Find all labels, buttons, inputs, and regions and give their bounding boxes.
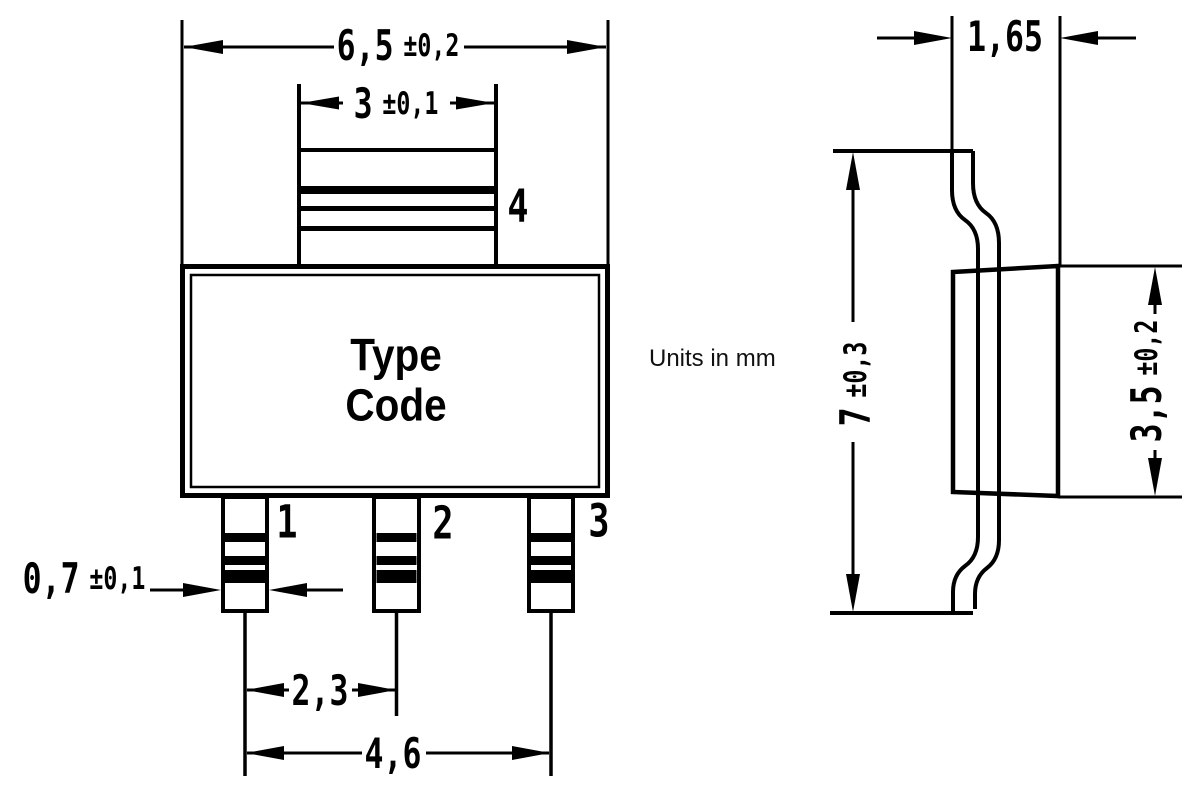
pin-3-front [529, 497, 573, 611]
units-note: Units in mm [649, 345, 776, 373]
dim-pin-width-tolerance: ±0,1 [89, 564, 145, 595]
pin-label-3: 3 [588, 499, 609, 544]
dim-tab-width-value: 3 [354, 83, 373, 125]
dim-body-width: 6,5 ±0,2 [337, 25, 460, 67]
dim-pin-width-value: 0,7 [23, 558, 80, 600]
arrowhead [914, 31, 952, 45]
pin-label-2: 2 [432, 501, 453, 546]
arrowhead [1060, 31, 1098, 45]
package-body-side [953, 266, 1058, 496]
arrowhead [358, 683, 396, 697]
pin-label-1: 1 [276, 500, 297, 545]
arrowhead [567, 40, 606, 54]
arrowhead [183, 583, 221, 597]
pin-label-4: 4 [507, 184, 528, 229]
pin-band [531, 533, 571, 542]
tab-band [301, 226, 494, 231]
pin-outline [374, 497, 419, 611]
pin-band [225, 533, 265, 542]
pin-band [377, 570, 417, 583]
arrowhead [456, 97, 494, 110]
side-view [830, 16, 1182, 613]
dim-body-height: 3,5 ±0,2 [1126, 320, 1168, 443]
dim-body-width-value: 6,5 [337, 25, 394, 67]
pin-band [225, 570, 265, 583]
arrowhead [846, 574, 860, 612]
dim-pin-pitch: 2,3 [292, 670, 349, 712]
pin-band [377, 533, 417, 542]
dim-pin-span: 4,6 [365, 733, 422, 775]
drawing-linework [0, 0, 1200, 794]
arrowhead [246, 683, 284, 697]
pin-band [531, 570, 571, 583]
pin-outline [529, 497, 573, 611]
pin-band [225, 556, 265, 565]
dim-tab-width-tolerance: ±0,1 [382, 89, 438, 120]
arrowhead [1148, 267, 1162, 305]
type-code-marking: Type Code [345, 331, 446, 432]
tab-band [301, 148, 494, 152]
tab-band [301, 206, 494, 211]
tab-band [301, 186, 494, 194]
dim-overall-height: 7 ±0,3 [835, 342, 877, 427]
pin-2-front [374, 497, 419, 611]
arrowhead [1148, 458, 1162, 496]
package-outline-drawing: 6,5 ±0,2 3 ±0,1 0,7 ±0,1 2,3 4,6 1,65 7 … [0, 0, 1200, 794]
arrowhead [512, 746, 550, 760]
dim-overall-height-tolerance: ±0,3 [841, 342, 872, 398]
pin-1-front [223, 497, 267, 611]
pin-band [377, 556, 417, 565]
dim-lead-thickness: 1,65 [967, 16, 1043, 58]
arrowhead [301, 97, 339, 110]
dim-body-height-value: 3,5 [1126, 385, 1168, 442]
dim-overall-height-value: 7 [835, 407, 877, 426]
dim-body-height-tolerance: ±0,2 [1132, 320, 1163, 376]
pin-width-dimension [150, 583, 343, 597]
pin-outline [223, 497, 267, 611]
lead-profile [952, 151, 999, 611]
lead-outer-line [952, 151, 978, 611]
dim-pin-span-value: 4,6 [365, 733, 422, 775]
dim-pin-width: 0,7 ±0,1 [23, 558, 146, 600]
arrowhead [846, 152, 860, 190]
dim-tab-width: 3 ±0,1 [354, 83, 439, 125]
dim-pin-pitch-value: 2,3 [292, 670, 349, 712]
pin-band [531, 556, 571, 565]
arrowhead [246, 746, 284, 760]
dim-lead-thickness-value: 1,65 [967, 16, 1043, 58]
arrowhead [184, 40, 223, 54]
dim-body-width-tolerance: ±0,2 [403, 31, 459, 62]
